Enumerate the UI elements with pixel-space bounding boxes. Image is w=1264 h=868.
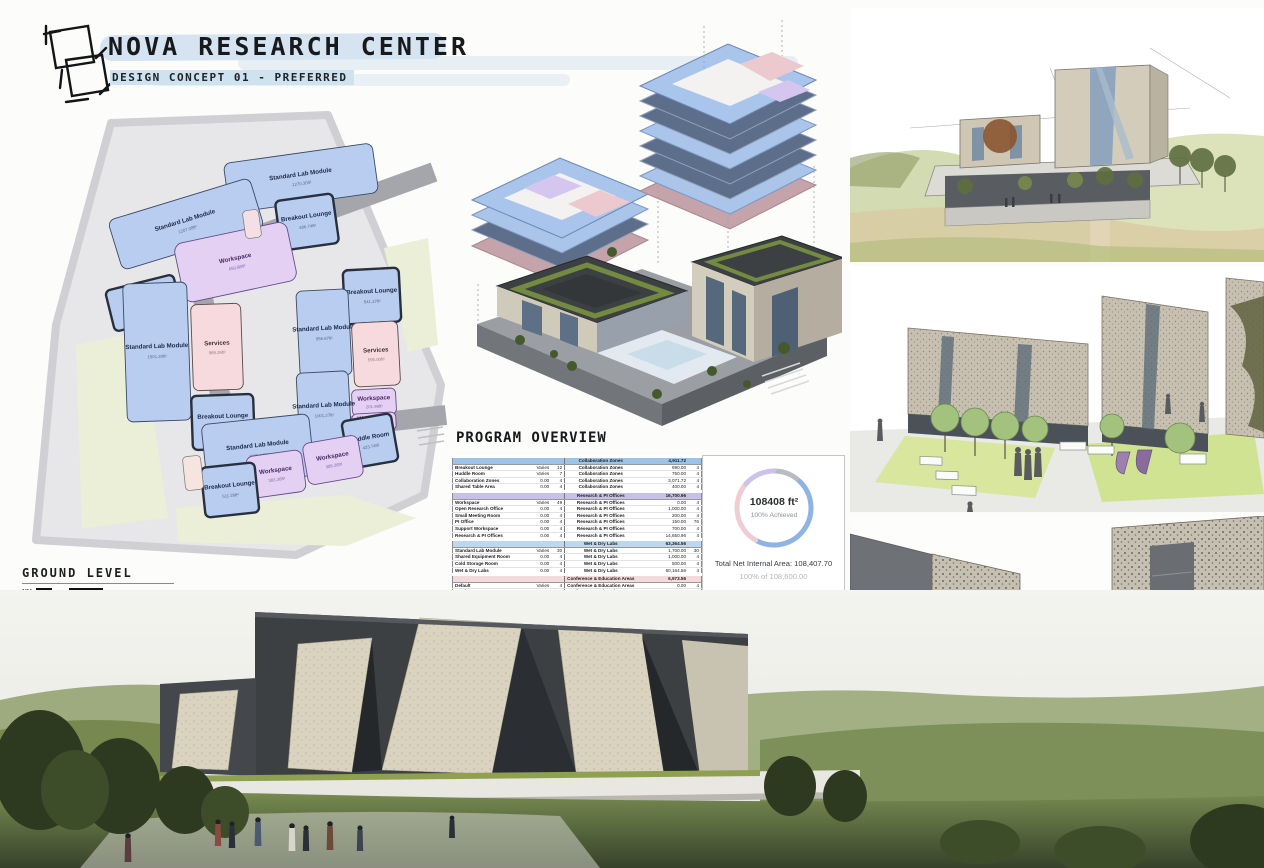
svg-text:201.99ft²: 201.99ft² (366, 404, 384, 410)
render-main-exterior (0, 590, 1264, 868)
program-row: DefaultVaries4Conference & Education Are… (453, 582, 702, 589)
svg-text:989.26ft²: 989.26ft² (209, 350, 227, 356)
donut-value: 108408 ft² (750, 496, 799, 508)
svg-text:595.00ft²: 595.00ft² (368, 357, 386, 363)
program-row: PI Office0.004Research & PI Offices150.0… (453, 519, 702, 526)
donut-ring (737, 471, 811, 545)
program-group-header: Conference & Education Areas6,973.56 (453, 575, 702, 583)
logo-overlapping-squares (36, 18, 114, 110)
program-row: Support Workspace0.004Research & PI Offi… (453, 525, 702, 532)
donut-status: 100% Achieved (751, 512, 798, 519)
program-row: Small Meeting Room0.004Research & PI Off… (453, 512, 702, 519)
program-row: Shared Equipment Room0.004Wet & Dry Labs… (453, 554, 702, 561)
program-row: WorkspaceVaries49Research & PI Offices0.… (453, 499, 702, 506)
donut-segment (746, 471, 773, 484)
connector-room (242, 209, 262, 239)
donut-chart: 108408 ft² 100% Achieved (703, 456, 846, 556)
program-row: Wet & Dry Labs0.004Wet & Dry Labs60,164.… (453, 567, 702, 575)
room-slm-956: Standard Lab Module 956.87ft² (290, 288, 358, 377)
room-slm-1501: Standard Lab Module 1501.20ft² (123, 282, 192, 422)
room-breakout-511: Breakout Lounge 511.26ft² (201, 462, 260, 517)
render-watercolor-sketch (850, 8, 1264, 262)
program-row: Collaboration Zones0.004Collaboration Zo… (453, 477, 702, 484)
room-services-989: Services 989.26ft² (191, 303, 244, 391)
program-row: Huddle RoomVaries7Collaboration Zones750… (453, 471, 702, 478)
program-row: Open Research Office0.004Research & PI O… (453, 506, 702, 513)
program-row: Research & PI Offices0.004Research & PI … (453, 532, 702, 540)
presentation-board: NOVA RESEARCH CENTER DESIGN CONCEPT 01 -… (0, 0, 1264, 868)
exploded-axonometric-diagram (452, 16, 842, 430)
room-workspace-385: Workspace 385.26ft² (302, 434, 364, 485)
floor-plan-svg: Standard Lab Module 1270.30ft² Standard … (16, 110, 448, 568)
program-row: Standard Lab ModuleVaries30Wet & Dry Lab… (453, 547, 702, 554)
program-row: Breakout LoungeVaries12Collaboration Zon… (453, 464, 702, 471)
summary-target-label: 100% of 108,600.00 (703, 572, 844, 581)
ground-floor-plan: Standard Lab Module 1270.30ft² Standard … (16, 110, 448, 568)
program-group-header: Collaboration Zones4,911.72 (453, 457, 702, 465)
program-overview-heading: PROGRAM OVERVIEW (456, 430, 607, 446)
area-summary-card: 108408 ft² 100% Achieved Total Net Inter… (702, 455, 845, 595)
render-courtyard-sketch (850, 266, 1264, 512)
program-row: Shared Table Area0.004Collaboration Zone… (453, 484, 702, 492)
svg-text:Services: Services (363, 346, 389, 354)
svg-text:Services: Services (204, 340, 230, 348)
room-breakout-541: Breakout Lounge 541.27ft² (343, 268, 402, 325)
program-row: Cold Storage Room0.004Wet & Dry Labs500.… (453, 560, 702, 567)
svg-text:956.87ft²: 956.87ft² (316, 336, 334, 342)
program-group-header: Research & PI Offices16,700.96 (453, 491, 702, 499)
plan-title: GROUND LEVEL (22, 566, 133, 580)
connector-room-2 (182, 455, 203, 491)
svg-text:541.27ft²: 541.27ft² (364, 299, 382, 305)
svg-text:1001.27ft²: 1001.27ft² (314, 412, 334, 418)
room-services-595: Services 595.00ft² (351, 321, 400, 387)
page-title: NOVA RESEARCH CENTER (108, 32, 469, 61)
program-group-header: Wet & Dry Labs63,364.56 (453, 540, 702, 548)
page-subtitle: DESIGN CONCEPT 01 - PREFERRED (110, 70, 354, 85)
axon-plate-stack-right (640, 44, 816, 229)
plan-title-rule (22, 583, 174, 584)
summary-total-label: Total Net Internal Area: 108,407.70 (703, 559, 844, 568)
donut-segment (775, 471, 799, 481)
svg-text:1501.20ft²: 1501.20ft² (147, 354, 167, 360)
